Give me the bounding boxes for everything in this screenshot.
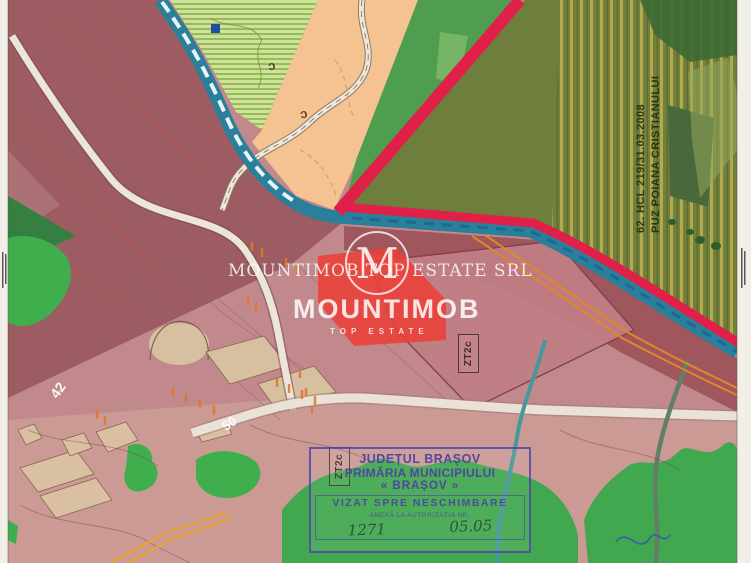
- map-graphic: [0, 0, 751, 563]
- edge-annotation-right: [741, 248, 743, 288]
- blue-marker: [211, 24, 220, 33]
- edge-annotation-left: [2, 252, 4, 288]
- zoning-map-viewport: M MOUNTIMOB TOP ESTATE SRL MOUNTIMOB TOP…: [0, 0, 751, 563]
